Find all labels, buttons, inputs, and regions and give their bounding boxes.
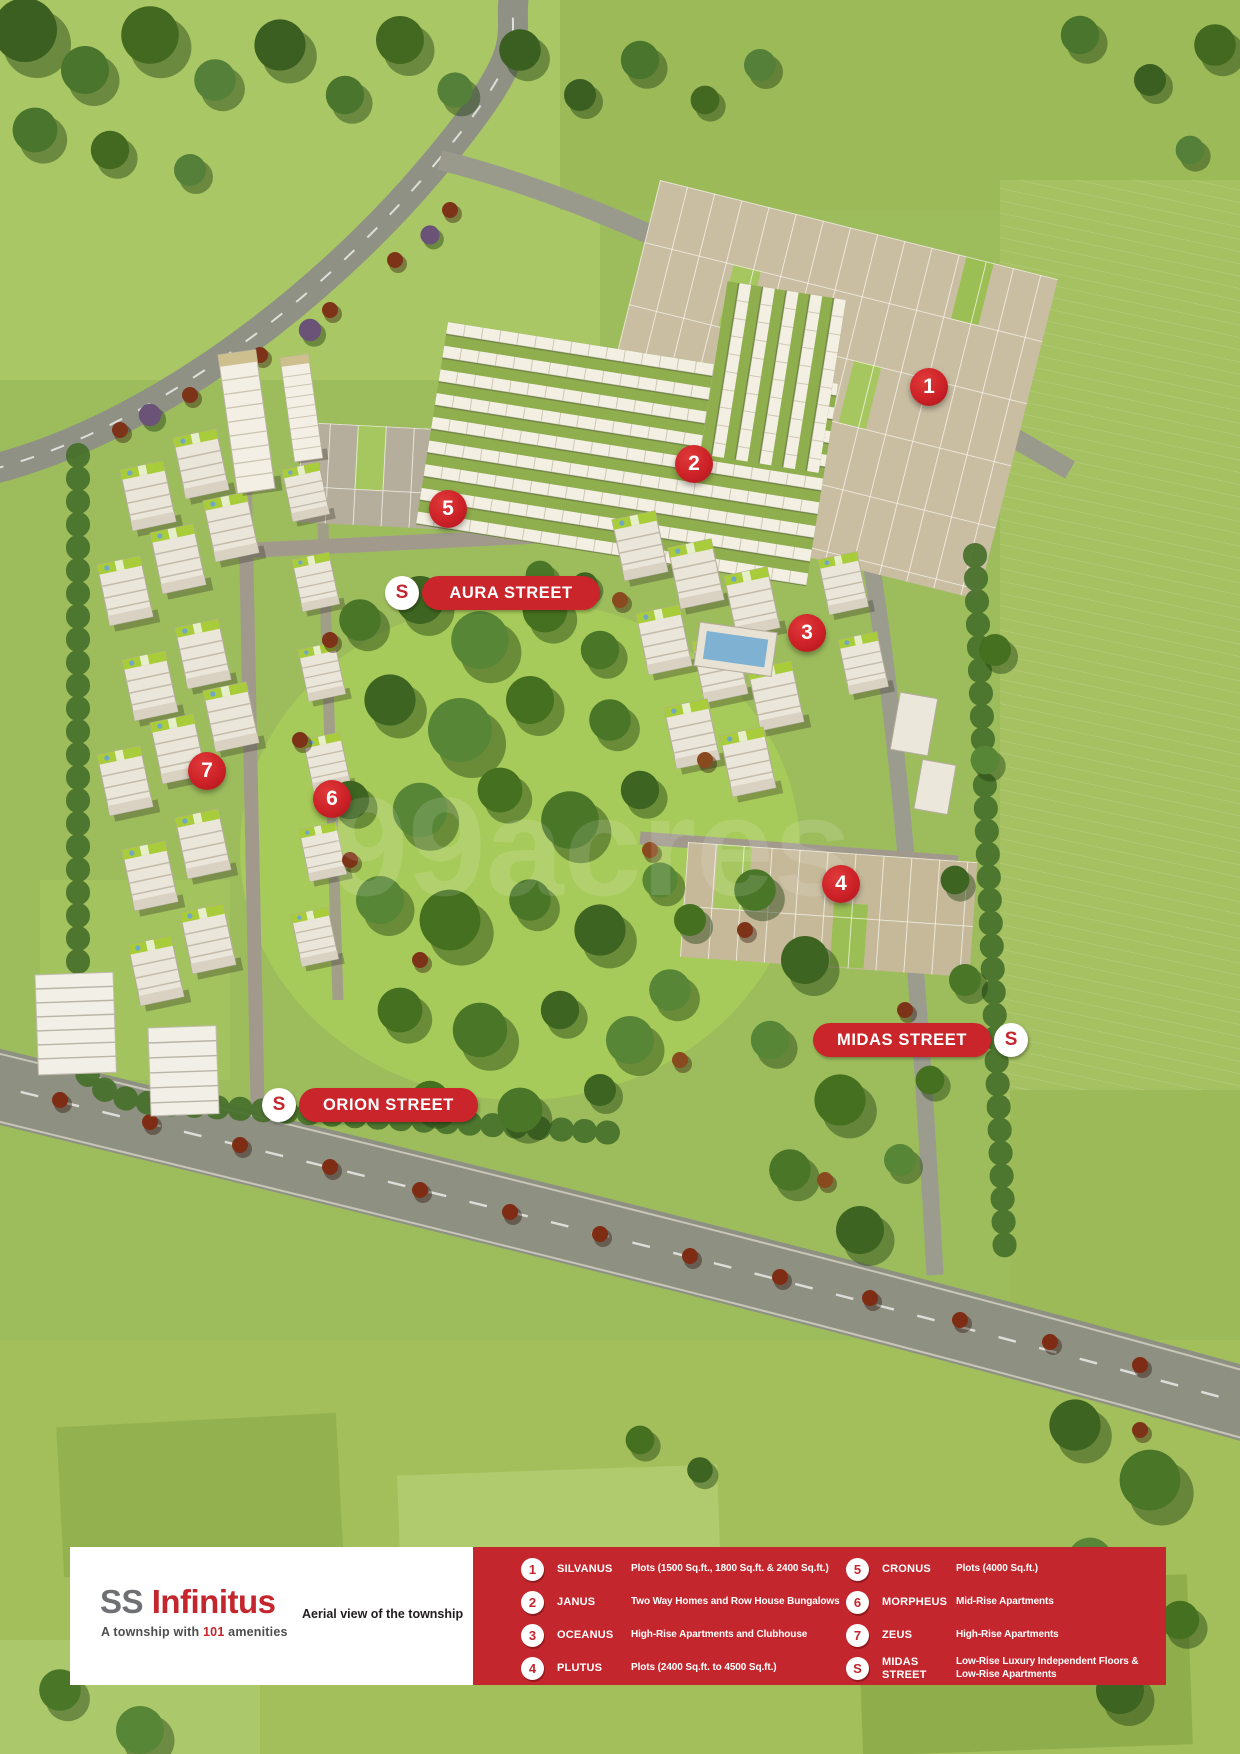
legend-item-silvanus: 1 SILVANUS Plots (1500 Sq.ft., 1800 Sq.f… [521, 1553, 843, 1586]
legend-badge: 6 [846, 1591, 869, 1614]
map-marker-3: 3 [788, 614, 826, 652]
legend-column-1: 1 SILVANUS Plots (1500 Sq.ft., 1800 Sq.f… [521, 1553, 843, 1685]
legend-column-2: 5 CRONUS Plots (4000 Sq.ft.) 6 MORPHEUS … [846, 1553, 1160, 1685]
legend-name: SILVANUS [557, 1563, 619, 1576]
legend-desc: High-Rise Apartments [956, 1629, 1160, 1642]
street-s-badge: S [385, 576, 419, 610]
street-s-badge: S [262, 1088, 296, 1122]
marker-number: 4 [835, 872, 847, 896]
map-marker-5: 5 [429, 490, 467, 528]
township-aerial-poster: 99acres 1 2 3 4 5 6 7 S AURA STREET S OR… [0, 0, 1240, 1754]
map-marker-2: 2 [675, 445, 713, 483]
marker-number: 2 [688, 452, 700, 476]
legend-badge: 2 [521, 1591, 544, 1614]
street-s-badge: S [994, 1023, 1028, 1057]
marker-number: 7 [201, 759, 213, 783]
legend-name: CRONUS [882, 1563, 944, 1576]
marker-number: 3 [801, 621, 813, 645]
street-name-pill: MIDAS STREET [813, 1023, 991, 1057]
tagline-text: A township with [101, 1625, 203, 1639]
marker-number: 1 [923, 375, 935, 399]
legend-name: OCEANUS [557, 1629, 619, 1642]
legend-desc: Mid-Rise Apartments [956, 1596, 1160, 1609]
map-marker-7: 7 [188, 752, 226, 790]
legend-item-janus: 2 JANUS Two Way Homes and Row House Bung… [521, 1586, 843, 1619]
brand-tagline: A township with 101 amenities [101, 1625, 288, 1639]
legend-desc: Two Way Homes and Row House Bungalows [631, 1596, 843, 1609]
legend-desc: Plots (4000 Sq.ft.) [956, 1563, 1160, 1576]
legend-badge: 1 [521, 1558, 544, 1581]
brand-name-part2: Infinitus [143, 1583, 275, 1620]
map-marker-4: 4 [822, 865, 860, 903]
legend-badge: 3 [521, 1624, 544, 1647]
legend-panel: 1 SILVANUS Plots (1500 Sq.ft., 1800 Sq.f… [473, 1547, 1166, 1685]
legend-name: PLUTUS [557, 1662, 619, 1675]
legend-name: JANUS [557, 1596, 619, 1609]
legend-badge: 5 [846, 1558, 869, 1581]
legend-name: MIDAS STREET [882, 1656, 944, 1681]
legend-item-midas-street: S MIDAS STREET Low-Rise Luxury Independe… [846, 1652, 1160, 1685]
legend-desc: Low-Rise Luxury Independent Floors & Low… [956, 1656, 1160, 1681]
street-label-midas: MIDAS STREET S [813, 1023, 1028, 1057]
legend-name: ZEUS [882, 1629, 944, 1642]
map-marker-1: 1 [910, 368, 948, 406]
watermark: 99acres [330, 768, 852, 925]
legend-item-zeus: 7 ZEUS High-Rise Apartments [846, 1619, 1160, 1652]
legend-item-cronus: 5 CRONUS Plots (4000 Sq.ft.) [846, 1553, 1160, 1586]
brand-panel: SS Infinitus A township with 101 ameniti… [70, 1547, 473, 1685]
tagline-text: amenities [225, 1625, 288, 1639]
legend-badge: 4 [521, 1657, 544, 1680]
legend-desc: Plots (1500 Sq.ft., 1800 Sq.ft. & 2400 S… [631, 1563, 843, 1576]
brand-name-part1: SS [100, 1583, 143, 1620]
legend-badge: 7 [846, 1624, 869, 1647]
marker-number: 5 [442, 497, 454, 521]
legend-desc: Plots (2400 Sq.ft. to 4500 Sq.ft.) [631, 1662, 843, 1675]
legend-name: MORPHEUS [882, 1596, 944, 1609]
street-label-aura: S AURA STREET [385, 576, 600, 610]
legend-badge: S [846, 1657, 869, 1680]
street-label-orion: S ORION STREET [262, 1088, 478, 1122]
street-name-pill: ORION STREET [299, 1088, 478, 1122]
legend-item-plutus: 4 PLUTUS Plots (2400 Sq.ft. to 4500 Sq.f… [521, 1652, 843, 1685]
legend-item-morpheus: 6 MORPHEUS Mid-Rise Apartments [846, 1586, 1160, 1619]
legend-desc: High-Rise Apartments and Clubhouse [631, 1629, 843, 1642]
marker-number: 6 [326, 787, 338, 811]
street-name-pill: AURA STREET [422, 576, 600, 610]
brand-logo: SS Infinitus [100, 1583, 276, 1621]
map-marker-6: 6 [313, 780, 351, 818]
aerial-illustration: 99acres [0, 0, 1240, 1754]
image-caption: Aerial view of the township [302, 1607, 463, 1621]
tagline-number: 101 [203, 1625, 224, 1639]
legend-item-oceanus: 3 OCEANUS High-Rise Apartments and Clubh… [521, 1619, 843, 1652]
